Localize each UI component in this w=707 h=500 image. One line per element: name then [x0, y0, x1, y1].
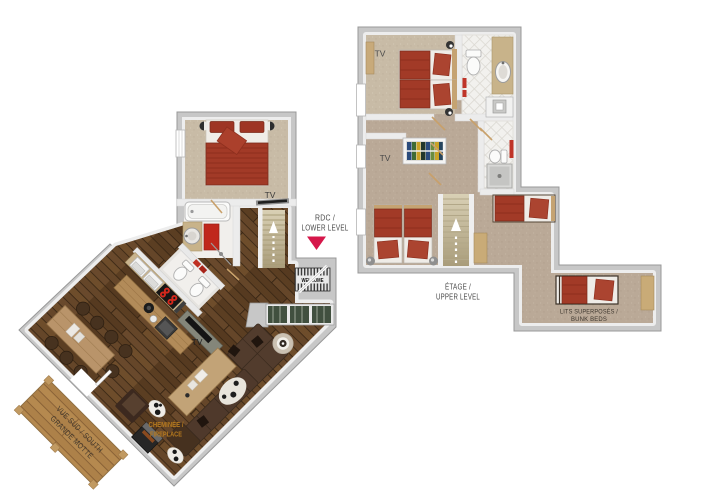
- svg-text:LITS SUPERPOSÉS /: LITS SUPERPOSÉS /: [560, 306, 618, 315]
- svg-text:BUNK BEDS: BUNK BEDS: [571, 316, 607, 323]
- svg-text:UPPER LEVEL: UPPER LEVEL: [436, 292, 480, 302]
- svg-text:LOWER LEVEL: LOWER LEVEL: [302, 223, 349, 233]
- svg-text:RDC /: RDC /: [315, 213, 335, 223]
- svg-text:FIREPLACE: FIREPLACE: [150, 430, 182, 439]
- svg-text:CHEMINÉE /: CHEMINÉE /: [149, 420, 184, 429]
- svg-text:TV: TV: [375, 49, 386, 59]
- svg-text:TV: TV: [265, 190, 276, 200]
- svg-text:TV: TV: [380, 153, 391, 163]
- svg-text:TV: TV: [192, 337, 203, 347]
- svg-text:ÉTAGE /: ÉTAGE /: [445, 282, 471, 292]
